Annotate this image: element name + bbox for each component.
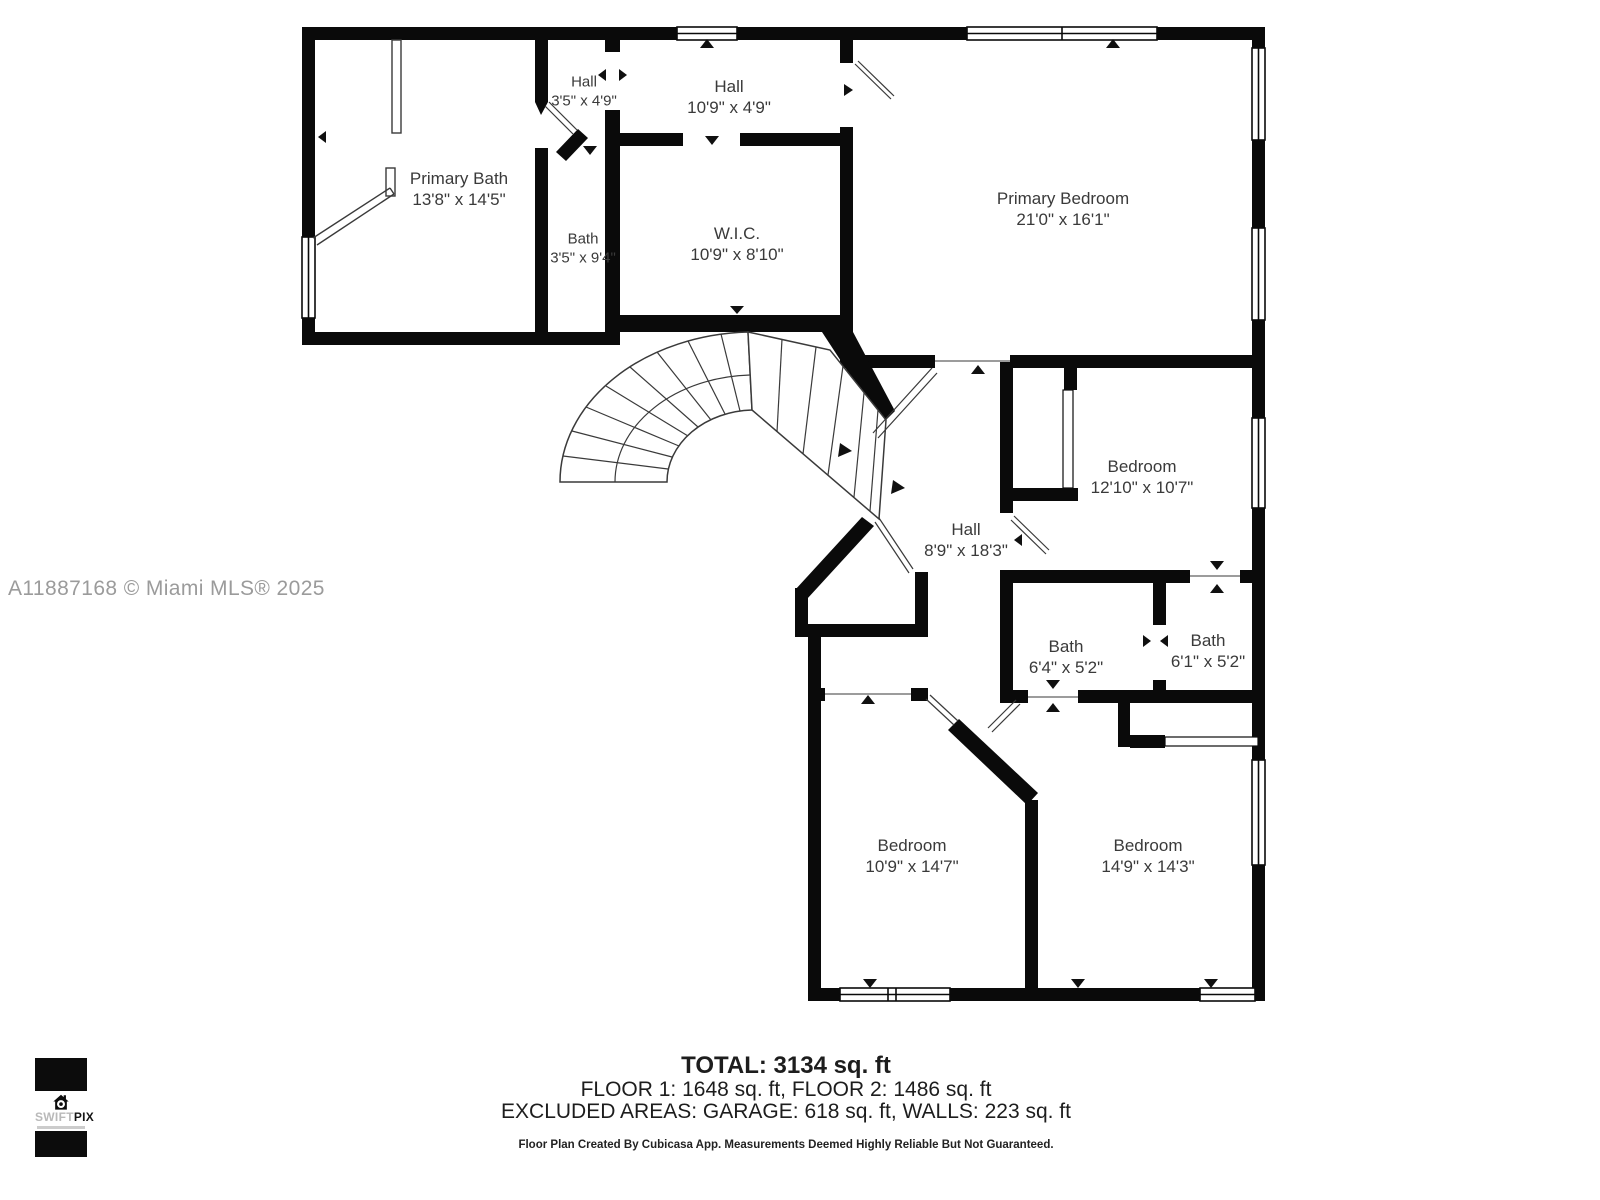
room-name: Bedroom (865, 835, 958, 856)
room-dims: 13'8" x 14'5" (410, 189, 508, 210)
room-label-bedroom-southeast: Bedroom 14'9" x 14'3" (1101, 835, 1194, 878)
room-dims: 14'9" x 14'3" (1101, 856, 1194, 877)
room-dims: 6'4" x 5'2" (1029, 657, 1103, 678)
room-name: Hall (924, 519, 1008, 540)
swiftpix-logo: SWIFTPIX (35, 1058, 87, 1157)
room-name: Hall (687, 76, 771, 97)
room-dims: 21'0" x 16'1" (997, 209, 1129, 230)
room-name: W.I.C. (690, 223, 783, 244)
logo-brand-bold: PIX (74, 1110, 94, 1124)
room-dims: 3'5" x 4'9" (551, 92, 617, 111)
logo-brand-text: SWIFTPIX (35, 1111, 87, 1124)
room-dims: 10'9" x 8'10" (690, 244, 783, 265)
room-label-bath-east: Bath 6'1" x 5'2" (1171, 630, 1245, 673)
room-name: Primary Bath (410, 168, 508, 189)
room-dims: 10'9" x 14'7" (865, 856, 958, 877)
shower-enclosure (313, 40, 401, 245)
room-label-hall-upper: Hall 10'9" x 4'9" (687, 76, 771, 119)
disclaimer-text: Floor Plan Created By Cubicasa App. Meas… (0, 1139, 1572, 1151)
floor-plan-page: Hall 3'5" x 4'9" Hall 10'9" x 4'9" Prima… (0, 0, 1600, 1200)
logo-brand-light: SWIFT (35, 1110, 74, 1124)
room-name: Bedroom (1091, 456, 1194, 477)
room-label-wic: W.I.C. 10'9" x 8'10" (690, 223, 783, 266)
total-area-text: TOTAL: 3134 sq. ft (0, 1052, 1572, 1080)
mls-watermark: A11887168 © Miami MLS® 2025 (8, 577, 325, 601)
room-label-primary-bedroom: Primary Bedroom 21'0" x 16'1" (997, 188, 1129, 231)
room-dims: 8'9" x 18'3" (924, 540, 1008, 561)
room-name: Bath (1029, 636, 1103, 657)
logo-tagline-divider (37, 1126, 85, 1129)
room-label-primary-bath: Primary Bath 13'8" x 14'5" (410, 168, 508, 211)
room-label-bedroom-southwest: Bedroom 10'9" x 14'7" (865, 835, 958, 878)
staircase (560, 332, 886, 519)
room-name: Bath (1171, 630, 1245, 651)
room-dims: 3'5" x 9'4" (550, 249, 616, 268)
room-label-bedroom-east: Bedroom 12'10" x 10'7" (1091, 456, 1194, 499)
room-label-bath-small: Bath 3'5" x 9'4" (550, 230, 616, 268)
room-dims: 10'9" x 4'9" (687, 97, 771, 118)
floor-areas-text: FLOOR 1: 1648 sq. ft, FLOOR 2: 1486 sq. … (0, 1078, 1572, 1102)
room-name: Hall (551, 73, 617, 92)
room-dims: 12'10" x 10'7" (1091, 477, 1194, 498)
logo-bottom-block (35, 1131, 87, 1157)
room-name: Bath (550, 230, 616, 249)
room-label-hall-main: Hall 8'9" x 18'3" (924, 519, 1008, 562)
room-label-hall-upper-small: Hall 3'5" x 4'9" (551, 73, 617, 111)
room-label-bath-west: Bath 6'4" x 5'2" (1029, 636, 1103, 679)
room-name: Bedroom (1101, 835, 1194, 856)
excluded-areas-text: EXCLUDED AREAS: GARAGE: 618 sq. ft, WALL… (0, 1100, 1572, 1124)
logo-top-block (35, 1058, 87, 1091)
house-camera-icon (52, 1093, 70, 1111)
room-name: Primary Bedroom (997, 188, 1129, 209)
room-dims: 6'1" x 5'2" (1171, 651, 1245, 672)
